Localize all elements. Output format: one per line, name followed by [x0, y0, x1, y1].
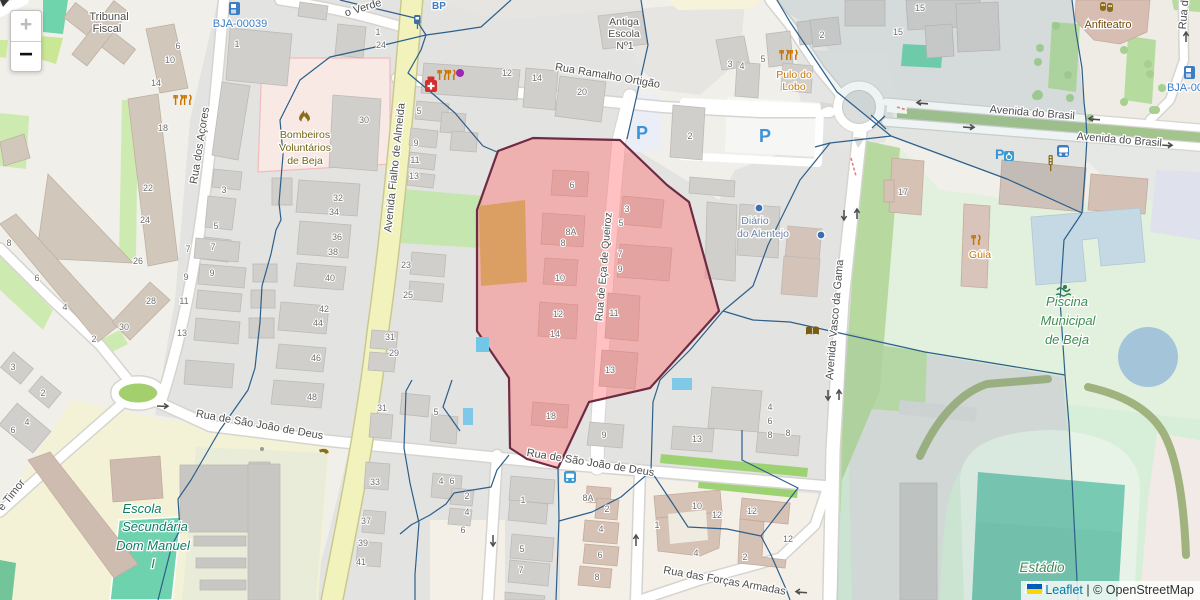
svg-text:6: 6	[10, 425, 15, 435]
svg-text:4: 4	[24, 417, 29, 427]
svg-text:Tribunal: Tribunal	[89, 11, 128, 23]
svg-text:2: 2	[91, 334, 96, 344]
svg-text:8: 8	[594, 572, 599, 582]
svg-text:8A: 8A	[582, 493, 593, 503]
svg-text:Piscina: Piscina	[1046, 294, 1088, 309]
svg-text:40: 40	[325, 273, 335, 283]
svg-text:I: I	[151, 556, 155, 571]
svg-text:8: 8	[6, 238, 11, 248]
svg-text:9: 9	[183, 272, 188, 282]
svg-text:10: 10	[165, 55, 175, 65]
svg-text:4: 4	[598, 524, 603, 534]
svg-text:20: 20	[577, 87, 587, 97]
svg-text:Antiga: Antiga	[609, 16, 639, 28]
svg-text:24: 24	[140, 215, 150, 225]
svg-text:1: 1	[520, 495, 525, 505]
svg-text:6: 6	[569, 180, 574, 190]
svg-text:4: 4	[739, 61, 744, 71]
svg-text:32: 32	[333, 193, 343, 203]
svg-text:BP: BP	[432, 1, 446, 12]
svg-text:46: 46	[311, 353, 321, 363]
svg-text:5: 5	[760, 54, 765, 64]
svg-text:6: 6	[449, 476, 454, 486]
svg-text:de Beja: de Beja	[1045, 332, 1089, 347]
svg-text:Secundária: Secundária	[122, 519, 188, 534]
svg-text:5: 5	[433, 407, 438, 417]
svg-text:5: 5	[416, 106, 421, 116]
svg-text:39: 39	[358, 538, 368, 548]
svg-text:5: 5	[618, 218, 623, 228]
svg-text:3: 3	[10, 362, 15, 372]
svg-text:6: 6	[175, 41, 180, 51]
svg-text:P: P	[636, 123, 648, 143]
svg-text:11: 11	[179, 296, 188, 306]
svg-text:BJA-00039: BJA-00039	[213, 18, 267, 30]
svg-text:6: 6	[460, 525, 465, 535]
svg-text:30: 30	[119, 322, 129, 332]
svg-text:13: 13	[409, 171, 419, 181]
svg-text:Escola: Escola	[608, 28, 640, 40]
svg-text:22: 22	[143, 183, 153, 193]
svg-text:Diário: Diário	[741, 215, 769, 227]
svg-text:4: 4	[464, 507, 469, 517]
svg-text:9: 9	[209, 268, 214, 278]
svg-text:41: 41	[356, 557, 366, 567]
svg-text:18: 18	[546, 411, 556, 421]
svg-text:13: 13	[692, 434, 702, 444]
svg-text:2: 2	[40, 388, 45, 398]
svg-text:Dom Manuel: Dom Manuel	[116, 538, 191, 553]
svg-text:11: 11	[609, 308, 618, 318]
svg-text:Gúia: Gúia	[969, 249, 991, 261]
svg-text:38: 38	[328, 247, 338, 257]
svg-text:Pulo do: Pulo do	[776, 69, 812, 81]
svg-text:14: 14	[151, 78, 161, 88]
svg-text:12: 12	[712, 510, 722, 520]
svg-text:18: 18	[158, 123, 168, 133]
svg-text:12: 12	[747, 506, 757, 516]
svg-text:8A: 8A	[565, 227, 576, 237]
svg-text:11: 11	[410, 155, 419, 165]
svg-text:2: 2	[687, 131, 692, 141]
svg-text:13: 13	[605, 365, 615, 375]
svg-text:1: 1	[234, 39, 239, 49]
svg-text:5: 5	[519, 544, 524, 554]
svg-text:24: 24	[376, 40, 386, 50]
svg-text:12: 12	[553, 309, 563, 319]
svg-text:9: 9	[601, 430, 606, 440]
svg-text:8: 8	[560, 238, 565, 248]
svg-text:36: 36	[332, 232, 342, 242]
svg-text:9: 9	[617, 264, 622, 274]
svg-text:2: 2	[464, 491, 469, 501]
svg-text:10: 10	[555, 273, 565, 283]
svg-text:31: 31	[385, 332, 395, 342]
svg-text:15: 15	[915, 3, 925, 13]
svg-text:6: 6	[767, 416, 772, 426]
svg-text:37: 37	[361, 516, 371, 526]
svg-text:25: 25	[403, 290, 413, 300]
svg-text:6: 6	[597, 550, 602, 560]
svg-text:2: 2	[819, 30, 824, 40]
svg-text:8: 8	[785, 428, 790, 438]
svg-text:de Beja: de Beja	[287, 155, 323, 167]
svg-text:1: 1	[654, 520, 659, 530]
svg-text:4: 4	[693, 548, 698, 558]
svg-text:28: 28	[146, 296, 156, 306]
svg-text:10: 10	[692, 501, 702, 511]
svg-text:14: 14	[532, 73, 542, 83]
svg-text:29: 29	[389, 348, 399, 358]
svg-text:BJA-00: BJA-00	[1167, 82, 1200, 94]
svg-text:2: 2	[742, 552, 747, 562]
svg-text:7: 7	[210, 242, 215, 252]
svg-text:4: 4	[767, 402, 772, 412]
svg-text:7: 7	[617, 249, 622, 259]
svg-text:13: 13	[177, 328, 187, 338]
svg-text:Escola: Escola	[122, 501, 161, 516]
svg-text:33: 33	[370, 477, 380, 487]
svg-text:5: 5	[213, 221, 218, 231]
svg-text:Municipal: Municipal	[1041, 313, 1097, 328]
svg-text:Rua d: Rua d	[1177, 0, 1192, 30]
svg-text:Bombeiros: Bombeiros	[280, 129, 330, 141]
svg-text:12: 12	[502, 68, 512, 78]
svg-text:P: P	[759, 126, 771, 146]
svg-text:15: 15	[893, 27, 903, 37]
svg-text:48: 48	[307, 392, 317, 402]
svg-text:3: 3	[221, 185, 226, 195]
svg-text:4: 4	[438, 476, 443, 486]
svg-text:do Alentejo: do Alentejo	[737, 228, 789, 240]
svg-text:4: 4	[62, 302, 67, 312]
svg-text:6: 6	[34, 273, 39, 283]
svg-text:3: 3	[727, 59, 732, 69]
svg-text:26: 26	[133, 256, 143, 266]
svg-text:14: 14	[550, 329, 560, 339]
svg-text:31: 31	[377, 403, 387, 413]
svg-text:30: 30	[359, 115, 369, 125]
svg-text:42: 42	[319, 304, 329, 314]
svg-text:Anfiteatro: Anfiteatro	[1084, 19, 1131, 31]
svg-text:9: 9	[413, 138, 418, 148]
svg-text:17: 17	[898, 187, 908, 197]
svg-text:Nº1: Nº1	[616, 40, 633, 52]
svg-text:7: 7	[518, 565, 523, 575]
svg-text:Voluntários: Voluntários	[279, 142, 331, 154]
svg-text:3: 3	[624, 204, 629, 214]
svg-text:34: 34	[329, 207, 339, 217]
svg-text:1: 1	[375, 27, 380, 37]
svg-text:Fiscal: Fiscal	[93, 23, 122, 35]
svg-text:23: 23	[401, 260, 411, 270]
svg-text:8: 8	[767, 430, 772, 440]
svg-text:12: 12	[783, 534, 793, 544]
svg-text:2: 2	[604, 504, 609, 514]
svg-text:7: 7	[185, 244, 190, 254]
svg-text:Estádio: Estádio	[1019, 560, 1065, 575]
svg-text:44: 44	[313, 318, 323, 328]
svg-text:P: P	[995, 146, 1004, 162]
svg-text:Lobo: Lobo	[782, 81, 806, 93]
